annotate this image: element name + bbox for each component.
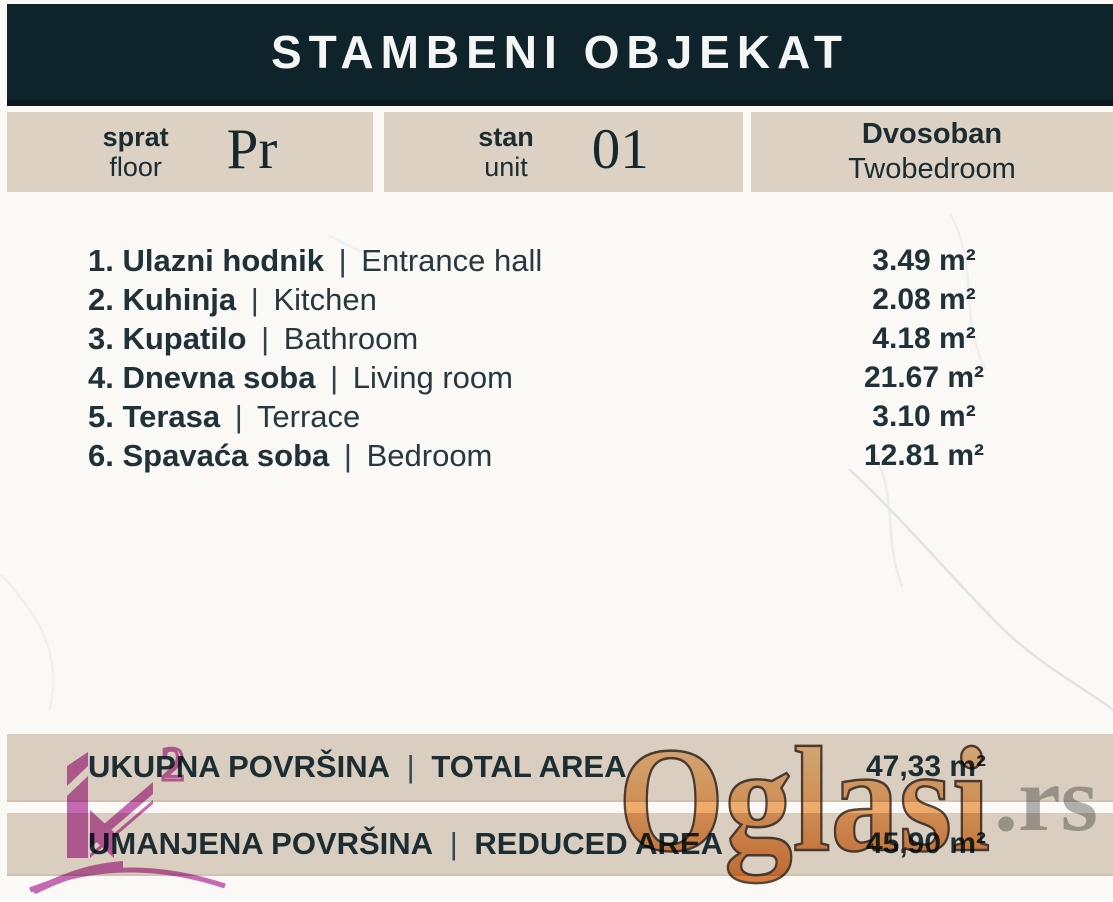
room-name-en: Living room xyxy=(353,360,513,395)
room-name-en: Terrace xyxy=(257,399,360,434)
room-number: 3. xyxy=(88,321,114,356)
room-name-en: Bathroom xyxy=(284,321,418,356)
room-name-sr: Ulazni hodnik xyxy=(122,243,324,278)
watermark-brand-text: Oglasi xyxy=(618,717,990,883)
room-area: 2.08 m² xyxy=(838,280,1010,319)
unit-label-en: unit xyxy=(478,152,534,182)
room-name-sr: Kupatilo xyxy=(122,321,246,356)
room-number: 5. xyxy=(88,399,114,434)
agency-logo-watermark: 2 xyxy=(28,736,238,902)
page-title: STAMBENI OBJEKAT xyxy=(271,25,849,79)
unit-value: 01 xyxy=(592,117,649,182)
room-name-en: Bedroom xyxy=(367,438,493,473)
floor-label-sr: sprat xyxy=(103,122,169,152)
room-name-sr: Kuhinja xyxy=(122,282,236,317)
separator: | xyxy=(255,321,275,356)
room-row-1: 1. Ulazni hodnik | Entrance hall 3.49 m² xyxy=(88,241,1106,280)
room-area: 3.49 m² xyxy=(838,241,1010,280)
room-name-sr: Dnevna soba xyxy=(122,360,315,395)
room-name-sr: Terasa xyxy=(122,399,220,434)
floor-label-en: floor xyxy=(103,152,169,182)
unit-labels: stan unit xyxy=(478,122,534,182)
room-name-en: Entrance hall xyxy=(361,243,542,278)
floor-labels: sprat floor xyxy=(103,122,169,182)
header: STAMBENI OBJEKAT xyxy=(7,4,1113,106)
room-row-5: 5. Terasa | Terrace 3.10 m² xyxy=(88,397,1106,436)
watermark-tld-text: .rs xyxy=(994,748,1098,850)
room-row-2: 2. Kuhinja | Kitchen 2.08 m² xyxy=(88,280,1106,319)
listing-card: STAMBENI OBJEKAT sprat floor Pr stan uni… xyxy=(0,0,1113,900)
room-number: 2. xyxy=(88,282,114,317)
unit-cell: stan unit 01 xyxy=(384,112,743,192)
floor-value: Pr xyxy=(227,117,278,182)
oglasi-rs-watermark: Oglasi .rs xyxy=(598,712,1113,902)
room-area: 3.10 m² xyxy=(838,397,1010,436)
type-label-en: Twobedroom xyxy=(848,152,1016,187)
separator: | xyxy=(399,749,423,784)
room-name-en: Kitchen xyxy=(273,282,376,317)
separator: | xyxy=(442,826,466,861)
separator: | xyxy=(324,360,344,395)
separator: | xyxy=(245,282,265,317)
room-row-6: 6. Spavaća soba | Bedroom 12.81 m² xyxy=(88,436,1106,475)
room-number: 4. xyxy=(88,360,114,395)
room-name-sr: Spavaća soba xyxy=(122,438,329,473)
separator: | xyxy=(338,438,358,473)
room-row-3: 3. Kupatilo | Bathroom 4.18 m² xyxy=(88,319,1106,358)
room-area: 21.67 m² xyxy=(838,358,1010,397)
room-list: 1. Ulazni hodnik | Entrance hall 3.49 m²… xyxy=(88,241,1106,475)
type-label-sr: Dvosoban xyxy=(862,117,1002,152)
separator: | xyxy=(333,243,353,278)
separator: | xyxy=(229,399,249,434)
apartment-type-cell: Dvosoban Twobedroom xyxy=(751,112,1113,192)
room-number: 6. xyxy=(88,438,114,473)
room-row-4: 4. Dnevna soba | Living room 21.67 m² xyxy=(88,358,1106,397)
floor-cell: sprat floor Pr xyxy=(7,112,373,192)
room-area: 4.18 m² xyxy=(838,319,1010,358)
room-number: 1. xyxy=(88,243,114,278)
unit-label-sr: stan xyxy=(478,122,534,152)
logo-superscript-2: 2 xyxy=(161,738,185,791)
room-area: 12.81 m² xyxy=(838,436,1010,475)
